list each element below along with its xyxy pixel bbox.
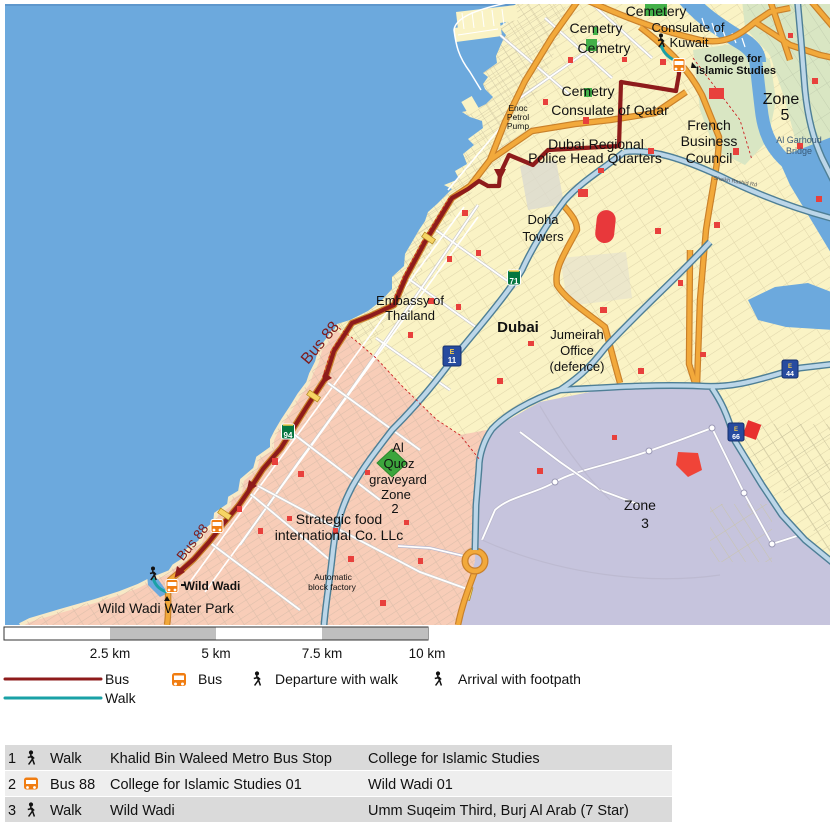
svg-text:Jumeirah: Jumeirah xyxy=(550,327,603,342)
svg-text:Walk: Walk xyxy=(50,751,82,767)
svg-text:Strategic food: Strategic food xyxy=(296,511,382,527)
svg-text:Consulate of Qatar: Consulate of Qatar xyxy=(551,102,669,118)
svg-text:Kuwait: Kuwait xyxy=(669,35,708,50)
svg-text:3: 3 xyxy=(8,803,16,819)
svg-text:71: 71 xyxy=(510,277,519,286)
svg-text:Council: Council xyxy=(686,150,733,166)
svg-text:Bus: Bus xyxy=(105,671,129,687)
svg-text:2: 2 xyxy=(8,777,16,793)
svg-text:Bridge: Bridge xyxy=(786,146,812,156)
svg-text:Dubai: Dubai xyxy=(497,319,539,336)
svg-text:Islamic Studies: Islamic Studies xyxy=(696,65,776,77)
svg-text:Walk: Walk xyxy=(105,690,137,706)
svg-text:Cemetery: Cemetery xyxy=(626,3,687,19)
svg-text:Towers: Towers xyxy=(522,229,564,244)
svg-text:Cemetry: Cemetry xyxy=(570,20,623,36)
svg-text:Khalid Bin Waleed Metro Bus St: Khalid Bin Waleed Metro Bus Stop xyxy=(110,751,332,767)
svg-text:66: 66 xyxy=(732,434,740,441)
svg-text:Wild Wadi 01: Wild Wadi 01 xyxy=(368,777,453,793)
svg-text:Wild Wadi: Wild Wadi xyxy=(110,803,175,819)
svg-text:E: E xyxy=(734,427,738,433)
svg-text:Pump: Pump xyxy=(507,121,529,131)
svg-text:44: 44 xyxy=(786,371,794,378)
svg-text:E: E xyxy=(450,349,455,356)
svg-text:11: 11 xyxy=(448,356,457,365)
svg-text:Zone: Zone xyxy=(624,497,656,513)
svg-text:Embassy of: Embassy of xyxy=(376,293,444,308)
svg-text:1: 1 xyxy=(8,751,16,767)
svg-text:Thailand: Thailand xyxy=(385,308,435,323)
svg-text:Quoz: Quoz xyxy=(383,456,414,471)
svg-text:French: French xyxy=(687,117,731,133)
svg-text:Departure with walk: Departure with walk xyxy=(275,671,399,687)
svg-text:3: 3 xyxy=(641,515,649,531)
svg-text:Consulate of: Consulate of xyxy=(652,20,725,35)
svg-text:Bus 88: Bus 88 xyxy=(50,777,95,793)
svg-text:Doha: Doha xyxy=(527,212,559,227)
svg-text:Zone: Zone xyxy=(763,91,800,108)
svg-text:Al: Al xyxy=(392,440,404,455)
svg-text:graveyard: graveyard xyxy=(369,472,427,487)
svg-text:5 km: 5 km xyxy=(201,646,230,661)
svg-text:College for Islamic Studies: College for Islamic Studies xyxy=(368,751,540,767)
svg-text:Bus: Bus xyxy=(198,671,222,687)
svg-text:Umm Suqeim Third, Burj Al Arab: Umm Suqeim Third, Burj Al Arab (7 Star) xyxy=(368,803,629,819)
svg-text:Cemetry: Cemetry xyxy=(578,40,631,56)
svg-text:E: E xyxy=(788,364,792,370)
svg-text:College for Islamic Studies 01: College for Islamic Studies 01 xyxy=(110,777,302,793)
svg-text:block factory: block factory xyxy=(308,582,356,592)
svg-text:Business: Business xyxy=(681,133,738,149)
svg-text:7.5 km: 7.5 km xyxy=(302,646,343,661)
svg-text:5: 5 xyxy=(781,107,790,124)
svg-text:Automatic: Automatic xyxy=(314,572,353,582)
svg-text:2: 2 xyxy=(391,501,398,516)
svg-text:10 km: 10 km xyxy=(409,646,446,661)
svg-text:Cemetry: Cemetry xyxy=(562,83,615,99)
svg-text:Zone: Zone xyxy=(381,487,411,502)
svg-text:Office: Office xyxy=(560,343,594,358)
svg-text:Wild Wadi: Wild Wadi xyxy=(184,579,241,593)
svg-text:Police Head Quarters: Police Head Quarters xyxy=(528,150,662,166)
svg-text:Walk: Walk xyxy=(50,803,82,819)
svg-text:Wild Wadi Water Park: Wild Wadi Water Park xyxy=(98,600,235,616)
svg-text:international Co. LLc: international Co. LLc xyxy=(275,527,403,543)
svg-text:(defence): (defence) xyxy=(550,359,605,374)
svg-text:2.5 km: 2.5 km xyxy=(90,646,131,661)
svg-text:Arrival with footpath: Arrival with footpath xyxy=(458,671,581,687)
svg-text:Al Garhoud: Al Garhoud xyxy=(776,135,822,145)
svg-text:College for: College for xyxy=(704,53,762,65)
svg-text:94: 94 xyxy=(284,431,293,440)
